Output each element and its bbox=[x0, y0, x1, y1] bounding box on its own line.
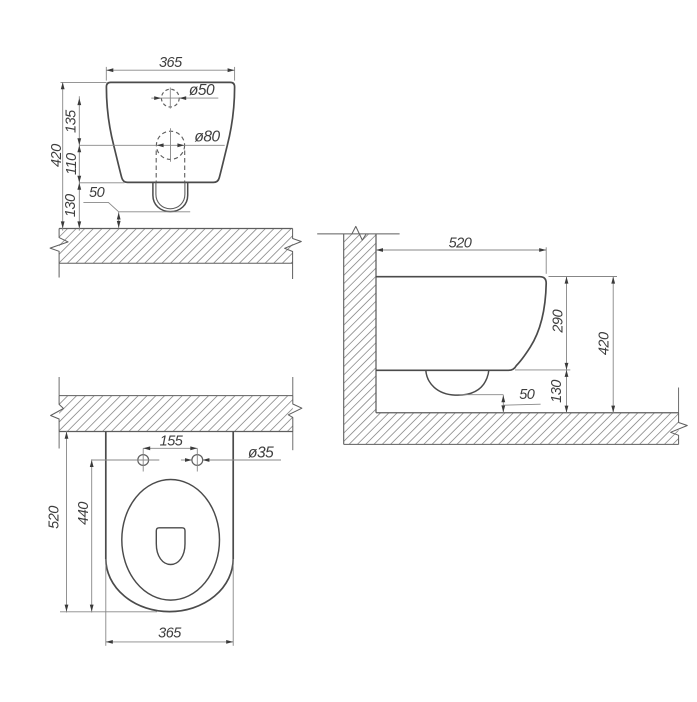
svg-text:520: 520 bbox=[47, 506, 63, 529]
svg-text:155: 155 bbox=[160, 434, 184, 450]
svg-text:ø50: ø50 bbox=[189, 82, 215, 99]
svg-text:440: 440 bbox=[76, 502, 92, 525]
svg-text:135: 135 bbox=[64, 109, 80, 133]
svg-text:110: 110 bbox=[64, 153, 80, 175]
svg-text:365: 365 bbox=[159, 55, 183, 71]
svg-text:290: 290 bbox=[550, 310, 566, 334]
svg-text:420: 420 bbox=[597, 332, 613, 355]
svg-text:420: 420 bbox=[49, 144, 65, 167]
svg-text:520: 520 bbox=[449, 236, 472, 252]
svg-text:ø80: ø80 bbox=[194, 129, 220, 146]
svg-text:50: 50 bbox=[89, 185, 105, 201]
svg-text:130: 130 bbox=[549, 380, 565, 403]
svg-text:ø35: ø35 bbox=[248, 445, 274, 462]
svg-text:130: 130 bbox=[63, 194, 79, 217]
svg-text:365: 365 bbox=[158, 626, 182, 642]
svg-text:50: 50 bbox=[519, 387, 535, 403]
